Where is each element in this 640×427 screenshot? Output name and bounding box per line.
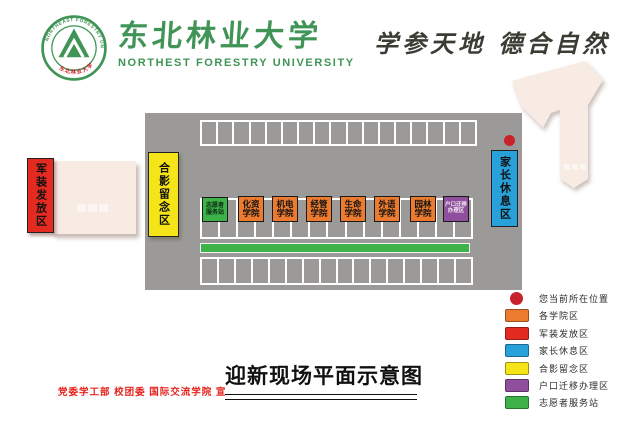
faint-arrow-label	[564, 164, 586, 170]
parking-stall	[219, 259, 236, 283]
brand-block: NORTHEAST FORESTRY UNIVERSITY 东北林业大学 东北林…	[40, 14, 355, 82]
entrance-arrow	[495, 50, 615, 200]
faint-building-label	[77, 204, 108, 212]
welcome-map-poster: NORTHEAST FORESTRY UNIVERSITY 东北林业大学 东北林…	[0, 0, 640, 427]
legend-item: 家长休息区	[505, 344, 609, 357]
parking-stall	[364, 122, 380, 144]
parking-stall	[202, 122, 218, 144]
booth-college: 化资 学院	[238, 196, 264, 222]
legend-swatch	[505, 396, 529, 409]
publisher-credit: 党委学工部 校团委 国际交流学院 宣	[58, 384, 226, 398]
parking-stall	[287, 259, 304, 283]
parking-stall	[371, 259, 388, 283]
university-logo-icon: NORTHEAST FORESTRY UNIVERSITY 东北林业大学	[40, 14, 108, 82]
parking-stall	[405, 259, 422, 283]
legend-item: 军装发放区	[505, 327, 609, 340]
legend-item: 户口迁移办理区	[505, 379, 609, 392]
legend-dot-icon	[510, 292, 523, 305]
legend-swatch	[505, 344, 529, 357]
parking-stall	[202, 259, 219, 283]
legend-item: 您当前所在位置	[505, 292, 609, 305]
parking-stall	[439, 259, 456, 283]
parking-stall	[234, 122, 250, 144]
university-name-cn: 东北林业大学	[117, 22, 356, 52]
parking-stall	[338, 259, 355, 283]
brand-text: 东北林业大学 NORTHEST FORESTRY UNIVERSITY	[118, 22, 355, 69]
legend: 您当前所在位置 各学院区 军装发放区 家长休息区 合影留念区 户口迁移办理区 志…	[505, 292, 609, 414]
parking-stall	[422, 259, 439, 283]
legend-swatch	[505, 327, 529, 340]
stall-row-bottom	[200, 257, 473, 285]
parking-stall	[348, 122, 364, 144]
parking-stall	[354, 259, 371, 283]
title-double-underline	[225, 394, 417, 400]
uniform-distribution-zone: 军装发放区	[27, 158, 54, 233]
booth-volunteer-station: 志愿者 服务站	[202, 197, 228, 222]
parking-stall	[380, 122, 396, 144]
parking-stall	[445, 122, 461, 144]
university-name-en: NORTHEST FORESTRY UNIVERSITY	[118, 57, 355, 69]
entrance-arrow-icon	[495, 50, 615, 200]
booth-residence-transfer: 户口迁移 办理区	[443, 196, 469, 222]
parking-stall	[218, 122, 234, 144]
parking-stall	[396, 122, 412, 144]
parking-stall	[299, 122, 315, 144]
legend-item: 合影留念区	[505, 362, 609, 375]
parking-stall	[388, 259, 405, 283]
booth-college: 经管 学院	[306, 196, 332, 222]
parking-stall	[267, 122, 283, 144]
poster-title-block: 迎新现场平面示意图	[225, 360, 417, 400]
booth-college: 园林 学院	[410, 196, 436, 222]
booth-college: 外语 学院	[374, 196, 400, 222]
legend-swatch	[505, 379, 529, 392]
parking-stall	[412, 122, 428, 144]
parking-stall	[456, 259, 471, 283]
parking-stall	[331, 122, 347, 144]
stall-row-top	[200, 120, 477, 146]
parking-stall	[236, 259, 253, 283]
parking-stall	[428, 122, 444, 144]
parking-stall	[251, 122, 267, 144]
green-divider-bar	[200, 243, 470, 253]
legend-swatch	[505, 309, 529, 322]
booth-college: 生命 学院	[340, 196, 366, 222]
building-left	[52, 161, 136, 234]
legend-item: 志愿者服务站	[505, 396, 609, 409]
parking-stall	[283, 122, 299, 144]
parking-stall	[321, 259, 338, 283]
parking-stall	[253, 259, 270, 283]
photo-zone: 合影留念区	[148, 152, 179, 237]
parking-stall	[461, 122, 475, 144]
parking-stall	[270, 259, 287, 283]
booth-college: 机电 学院	[272, 196, 298, 222]
parking-stall	[315, 122, 331, 144]
poster-title: 迎新现场平面示意图	[225, 360, 417, 390]
legend-swatch	[505, 362, 529, 375]
parking-lot: 合影留念区 家长休息区 志愿者 服务站 化资 学院 机电 学院 经管 学院 生命…	[145, 113, 522, 290]
legend-item: 各学院区	[505, 309, 609, 322]
parking-stall	[304, 259, 321, 283]
